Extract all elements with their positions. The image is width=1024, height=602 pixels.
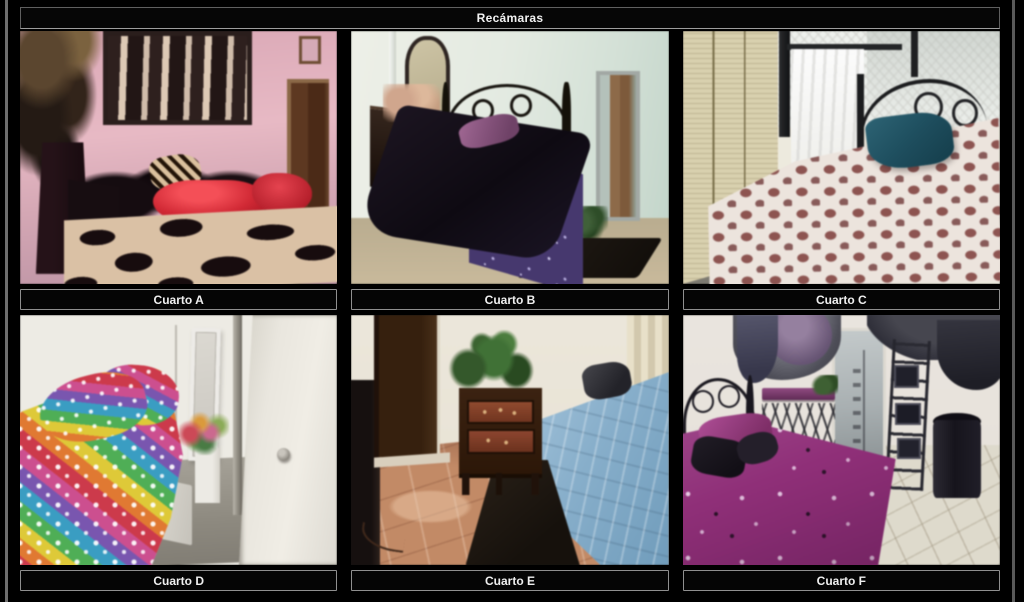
label-cuarto-d: Cuarto D: [20, 570, 337, 591]
room-label-text: Cuarto D: [153, 574, 204, 588]
collage-title: Recámaras: [477, 11, 544, 25]
label-cuarto-a: Cuarto A: [20, 289, 337, 310]
room-photo-collage: Recámaras: [0, 0, 1024, 602]
bedroom-d-scene: [20, 315, 337, 565]
photo-cuarto-b: [351, 31, 668, 284]
brown-door: [374, 315, 441, 458]
curtain-rod: [911, 31, 918, 77]
black-hamper: [933, 420, 981, 498]
room-label-text: Cuarto E: [485, 574, 535, 588]
photo-grid: Cuarto A Cuarto B Cuarto C: [20, 31, 1000, 591]
bedroom-a-scene: [20, 31, 337, 284]
bedroom-c-scene: [683, 31, 1000, 284]
open-white-door: [239, 315, 337, 565]
small-picture-frame: [299, 36, 321, 64]
photo-cuarto-c: [683, 31, 1000, 284]
flower-bouquet: [179, 408, 230, 456]
photo-cuarto-f: [683, 315, 1000, 565]
headboard-scroll: [510, 94, 532, 117]
headboard-scroll: [692, 390, 714, 413]
room-label-text: Cuarto A: [154, 293, 204, 307]
label-cuarto-f: Cuarto F: [683, 570, 1000, 591]
label-cuarto-e: Cuarto E: [351, 570, 668, 591]
dark-drape: [937, 320, 1000, 390]
nightstand-legs: [462, 473, 538, 496]
right-edge-rule: [1012, 0, 1015, 602]
photo-cuarto-e: [351, 315, 668, 565]
left-edge-rule: [5, 0, 8, 602]
bedroom-b-scene: [351, 31, 668, 284]
hanging-frame: [897, 438, 921, 459]
photo-cuarto-a: [20, 31, 337, 284]
white-pedestal: [195, 448, 220, 503]
potted-plant: [443, 330, 545, 400]
zebra-wall-art: [103, 31, 252, 125]
bedroom-e-scene: [351, 315, 668, 565]
headboard-scroll: [718, 385, 740, 408]
photo-cuarto-d: [20, 315, 337, 565]
small-plant: [810, 375, 839, 395]
room-label-text: Cuarto B: [485, 293, 536, 307]
room-label-text: Cuarto F: [817, 574, 866, 588]
standing-mirror: [596, 71, 640, 220]
headboard-scroll: [952, 99, 977, 127]
hanging-frame: [895, 403, 920, 426]
animal-print-blanket: [64, 206, 337, 284]
hanging-frame: [894, 365, 919, 388]
bedroom-f-scene: [683, 315, 1000, 565]
door-frame: [233, 315, 243, 515]
nightstand-drawer: [467, 429, 535, 454]
label-cuarto-c: Cuarto C: [683, 289, 1000, 310]
collage-title-bar: Recámaras: [20, 7, 1000, 29]
label-cuarto-b: Cuarto B: [351, 289, 668, 310]
room-label-text: Cuarto C: [816, 293, 867, 307]
nightstand-drawer: [467, 400, 534, 424]
